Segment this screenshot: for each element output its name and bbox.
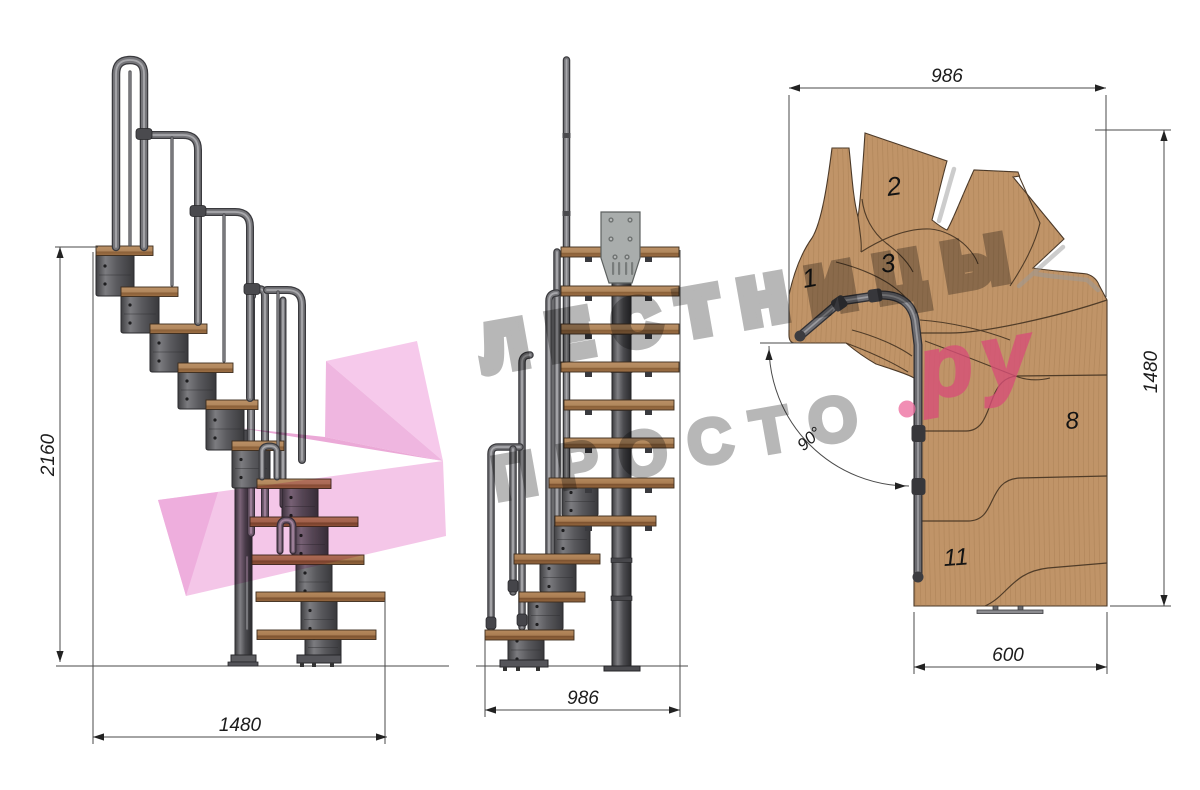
svg-text:8: 8	[1065, 407, 1081, 435]
svg-text:986: 986	[567, 688, 599, 709]
svg-text:600: 600	[992, 645, 1024, 666]
svg-text:2160: 2160	[38, 433, 59, 477]
svg-text:986: 986	[931, 66, 963, 87]
svg-text:11: 11	[943, 543, 970, 572]
svg-text:1480: 1480	[1141, 350, 1162, 393]
svg-text:1480: 1480	[219, 715, 262, 736]
